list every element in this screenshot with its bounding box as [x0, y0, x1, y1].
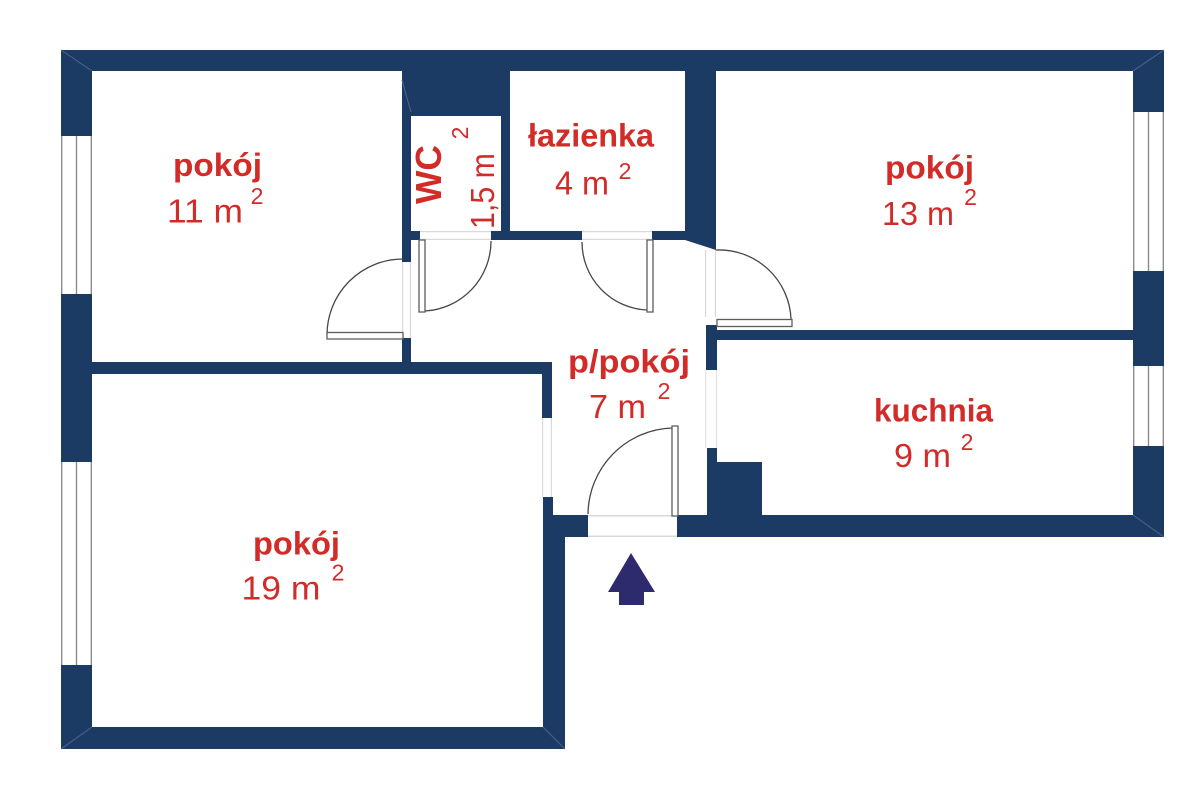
svg-text:13 m: 13 m — [882, 195, 954, 232]
svg-text:kuchnia: kuchnia — [874, 393, 993, 429]
svg-text:2: 2 — [964, 184, 977, 210]
svg-text:2: 2 — [251, 183, 264, 209]
svg-text:11 m: 11 m — [167, 193, 243, 230]
svg-text:7 m: 7 m — [589, 388, 646, 425]
svg-text:9 m: 9 m — [894, 437, 951, 474]
svg-text:2: 2 — [332, 560, 345, 586]
svg-text:pokój: pokój — [253, 526, 340, 562]
svg-text:4 m: 4 m — [555, 165, 609, 202]
svg-text:łazienka: łazienka — [528, 118, 654, 154]
svg-text:2: 2 — [447, 127, 473, 140]
svg-text:2: 2 — [619, 158, 632, 184]
svg-text:pokój: pokój — [173, 147, 262, 183]
svg-text:pokój: pokój — [885, 150, 974, 186]
svg-text:2: 2 — [658, 378, 671, 404]
svg-text:WC: WC — [408, 145, 449, 204]
svg-text:19 m: 19 m — [242, 570, 321, 607]
svg-text:p/pokój: p/pokój — [568, 344, 690, 380]
svg-text:1,5 m: 1,5 m — [464, 153, 501, 229]
svg-text:2: 2 — [961, 429, 974, 455]
